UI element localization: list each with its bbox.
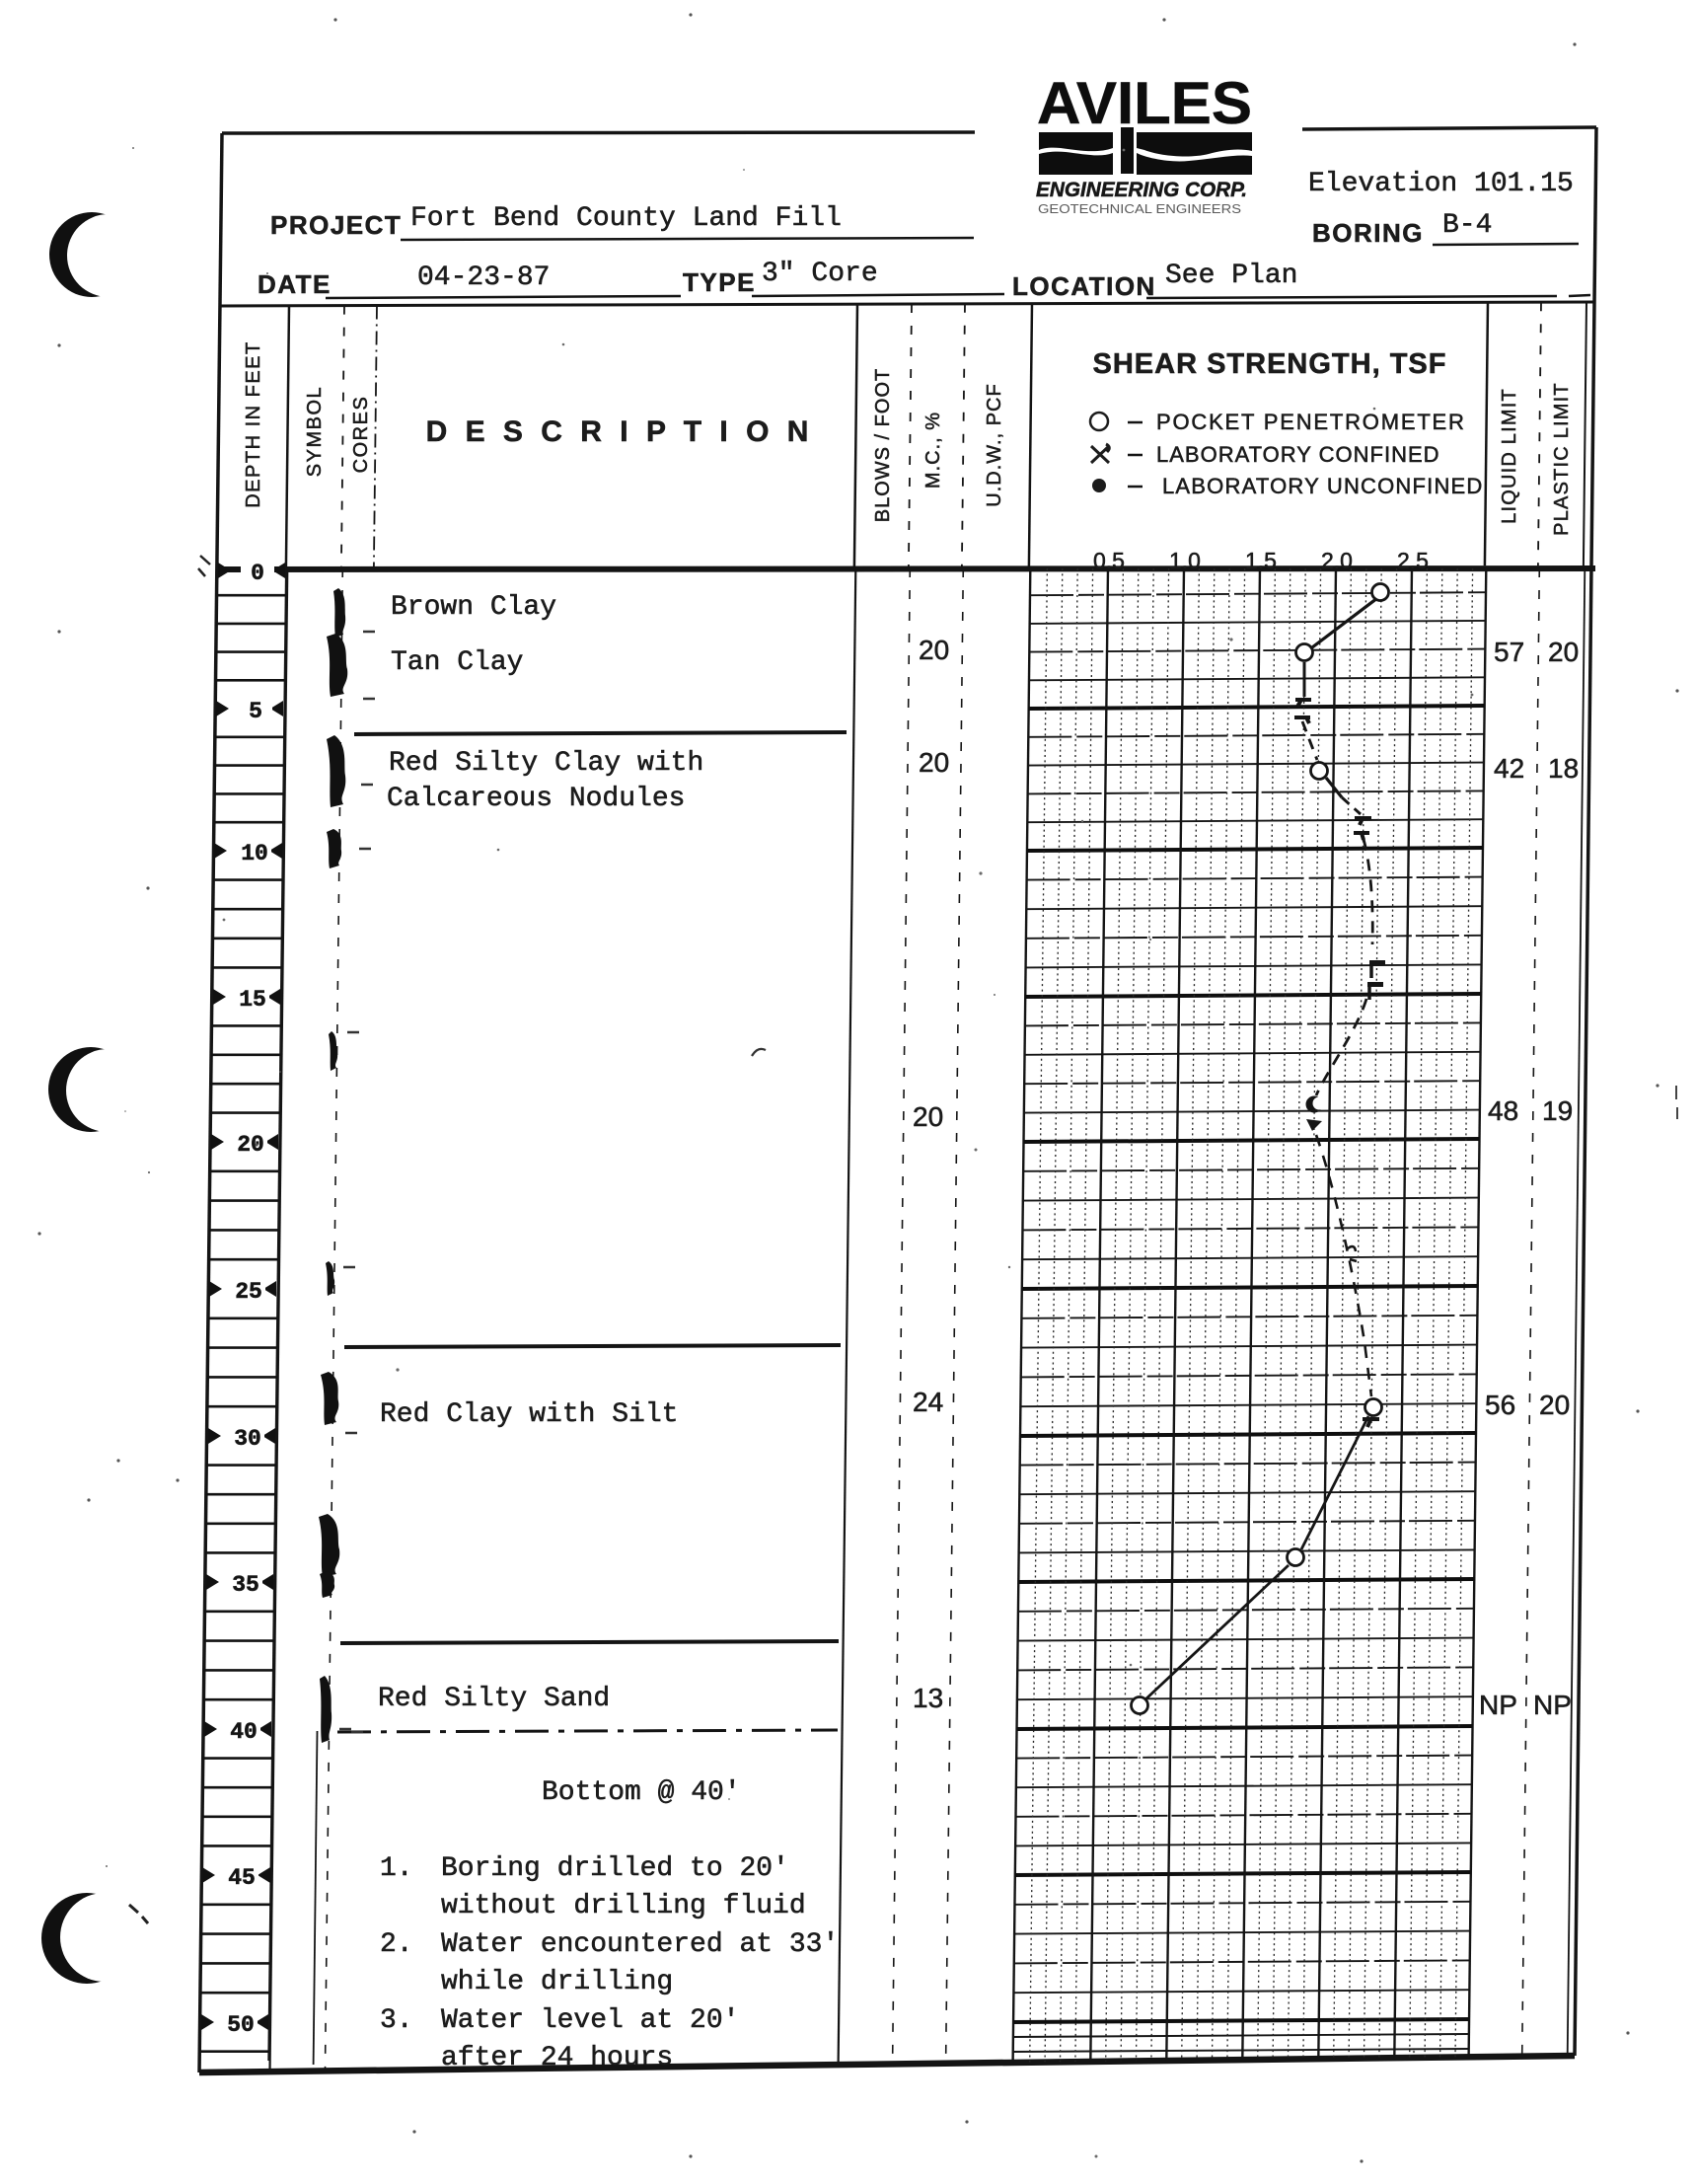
svg-text:AVILES: AVILES	[1037, 70, 1252, 136]
svg-text:18: 18	[1548, 753, 1579, 784]
svg-text:Water encountered at 33': Water encountered at 33'	[441, 1929, 839, 1960]
svg-text:2.: 2.	[380, 1929, 413, 1960]
svg-text:0: 0	[251, 561, 264, 586]
svg-text:PLASTIC LIMIT: PLASTIC LIMIT	[1551, 382, 1573, 536]
svg-text:19: 19	[1542, 1095, 1573, 1126]
svg-text:Bottom @ 40': Bottom @ 40'	[542, 1777, 741, 1808]
svg-text:SYMBOL: SYMBOL	[304, 386, 326, 477]
svg-text:LOCATION: LOCATION	[1012, 271, 1156, 301]
svg-text:NP: NP	[1533, 1690, 1572, 1720]
svg-text:Boring drilled to 20': Boring drilled to 20'	[441, 1853, 789, 1884]
svg-text:without drilling fluid: without drilling fluid	[441, 1891, 806, 1921]
svg-text:5: 5	[249, 699, 262, 724]
svg-text:D E S C R I P T I O N: D E S C R I P T I O N	[426, 415, 814, 448]
svg-text:SHEAR STRENGTH, TSF: SHEAR STRENGTH, TSF	[1093, 348, 1447, 380]
svg-text:50: 50	[227, 2012, 255, 2038]
svg-text:GEOTECHNICAL ENGINEERS: GEOTECHNICAL ENGINEERS	[1038, 202, 1241, 216]
svg-text:Red Silty Clay with: Red Silty Clay with	[389, 748, 703, 779]
svg-text:24: 24	[913, 1387, 943, 1417]
svg-text:Water level at 20': Water level at 20'	[441, 2005, 739, 2036]
svg-text:40: 40	[230, 1719, 258, 1745]
svg-text:45: 45	[228, 1865, 256, 1891]
svg-text:TYPE: TYPE	[683, 267, 756, 297]
svg-text:3.: 3.	[380, 2005, 413, 2036]
svg-text:20: 20	[1539, 1390, 1570, 1420]
svg-text:30: 30	[234, 1426, 261, 1452]
svg-text:M.C., %: M.C., %	[922, 412, 944, 489]
svg-text:1.: 1.	[380, 1853, 413, 1884]
svg-text:13: 13	[913, 1683, 943, 1713]
svg-text:Tan Clay: Tan Clay	[391, 647, 523, 678]
svg-text:POCKET PENETROMETER: POCKET PENETROMETER	[1156, 410, 1466, 434]
svg-text:BLOWS / FOOT: BLOWS / FOOT	[872, 368, 894, 522]
svg-text:20: 20	[919, 635, 949, 665]
svg-text:U.D.W., PCF: U.D.W., PCF	[984, 383, 1005, 506]
svg-text:48: 48	[1488, 1095, 1518, 1126]
svg-text:CORES: CORES	[350, 396, 372, 474]
svg-text:56: 56	[1485, 1390, 1515, 1420]
svg-text:35: 35	[232, 1572, 259, 1598]
svg-text:Fort Bend County Land Fill: Fort Bend County Land Fill	[410, 203, 842, 234]
svg-text:Calcareous Nodules: Calcareous Nodules	[387, 784, 685, 814]
svg-text:B-4: B-4	[1442, 210, 1492, 241]
svg-text:25: 25	[235, 1279, 262, 1305]
svg-text:57: 57	[1494, 637, 1524, 667]
svg-text:DEPTH IN FEET: DEPTH IN FEET	[243, 340, 264, 508]
svg-text:while drilling: while drilling	[441, 1967, 673, 1997]
svg-text:15: 15	[239, 987, 266, 1013]
svg-text:3" Core: 3" Core	[762, 259, 878, 289]
svg-text:DATE: DATE	[258, 269, 332, 299]
svg-text:20: 20	[913, 1101, 943, 1132]
svg-text:Brown Clay: Brown Clay	[391, 592, 556, 623]
svg-text:10: 10	[241, 841, 268, 866]
svg-text:after 24 hours: after 24 hours	[441, 2043, 673, 2073]
svg-text:BORING: BORING	[1312, 218, 1424, 248]
svg-text:LABORATORY CONFINED: LABORATORY CONFINED	[1156, 442, 1440, 467]
svg-text:04-23-87: 04-23-87	[417, 263, 550, 293]
svg-text:Red Silty Sand: Red Silty Sand	[378, 1684, 610, 1714]
svg-text:ENGINEERING CORP.: ENGINEERING CORP.	[1036, 179, 1247, 201]
svg-text:NP: NP	[1479, 1690, 1517, 1720]
svg-text:PROJECT: PROJECT	[270, 210, 402, 240]
svg-text:20: 20	[1548, 637, 1579, 667]
svg-text:Elevation 101.15: Elevation 101.15	[1308, 169, 1574, 199]
svg-text:LIQUID LIMIT: LIQUID LIMIT	[1499, 388, 1520, 524]
svg-text:LABORATORY UNCONFINED: LABORATORY UNCONFINED	[1162, 474, 1484, 498]
svg-text:Red Clay with Silt: Red Clay with Silt	[380, 1399, 678, 1430]
svg-text:20: 20	[919, 747, 949, 778]
svg-text:42: 42	[1494, 753, 1524, 784]
svg-text:See Plan: See Plan	[1165, 261, 1297, 291]
svg-text:20: 20	[237, 1132, 264, 1158]
